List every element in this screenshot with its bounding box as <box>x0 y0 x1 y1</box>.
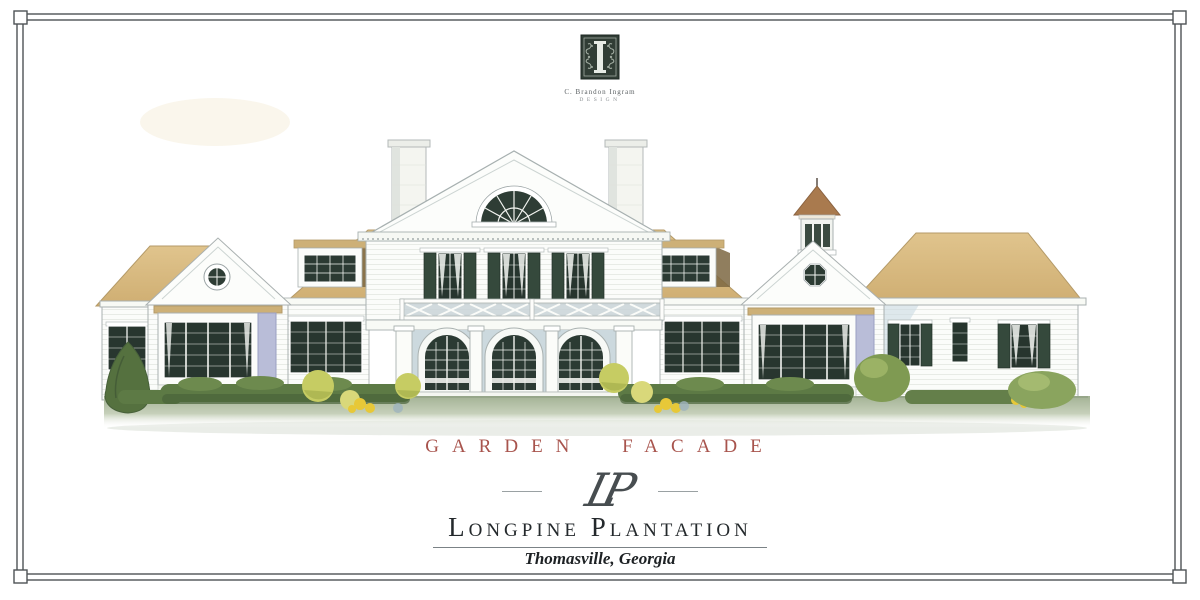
porthole-window-icon <box>204 264 230 290</box>
monogram-rule-right <box>658 491 698 492</box>
ornament-logo-icon <box>580 34 620 80</box>
project-title: Longpine Plantation <box>0 512 1200 543</box>
presentation-board: C. Brandon Ingram DESIGN GARDEN FACADE L… <box>0 0 1200 600</box>
corner-knot-icon <box>14 11 27 24</box>
cupola <box>794 178 840 255</box>
monogram-rule-left <box>502 491 542 492</box>
title-rule <box>433 547 767 548</box>
watercolor-wash <box>140 98 290 146</box>
corner-knot-icon <box>14 570 27 583</box>
corner-knot-icon <box>1173 570 1186 583</box>
studio-subtitle: DESIGN <box>0 97 1200 103</box>
studio-name: C. Brandon Ingram <box>0 88 1200 96</box>
shed-dormer <box>294 240 376 287</box>
arched-french-doors <box>418 328 610 392</box>
studio-logo: C. Brandon Ingram DESIGN <box>0 34 1200 103</box>
facade-caption: GARDEN FACADE <box>0 436 1200 458</box>
monogram-letters: LP <box>579 465 642 518</box>
octagon-window-icon <box>804 264 826 286</box>
corner-knot-icon <box>1173 11 1186 24</box>
second-floor-windows <box>420 248 608 299</box>
project-location: Thomasville, Georgia <box>0 549 1200 569</box>
balustrade <box>400 299 664 320</box>
